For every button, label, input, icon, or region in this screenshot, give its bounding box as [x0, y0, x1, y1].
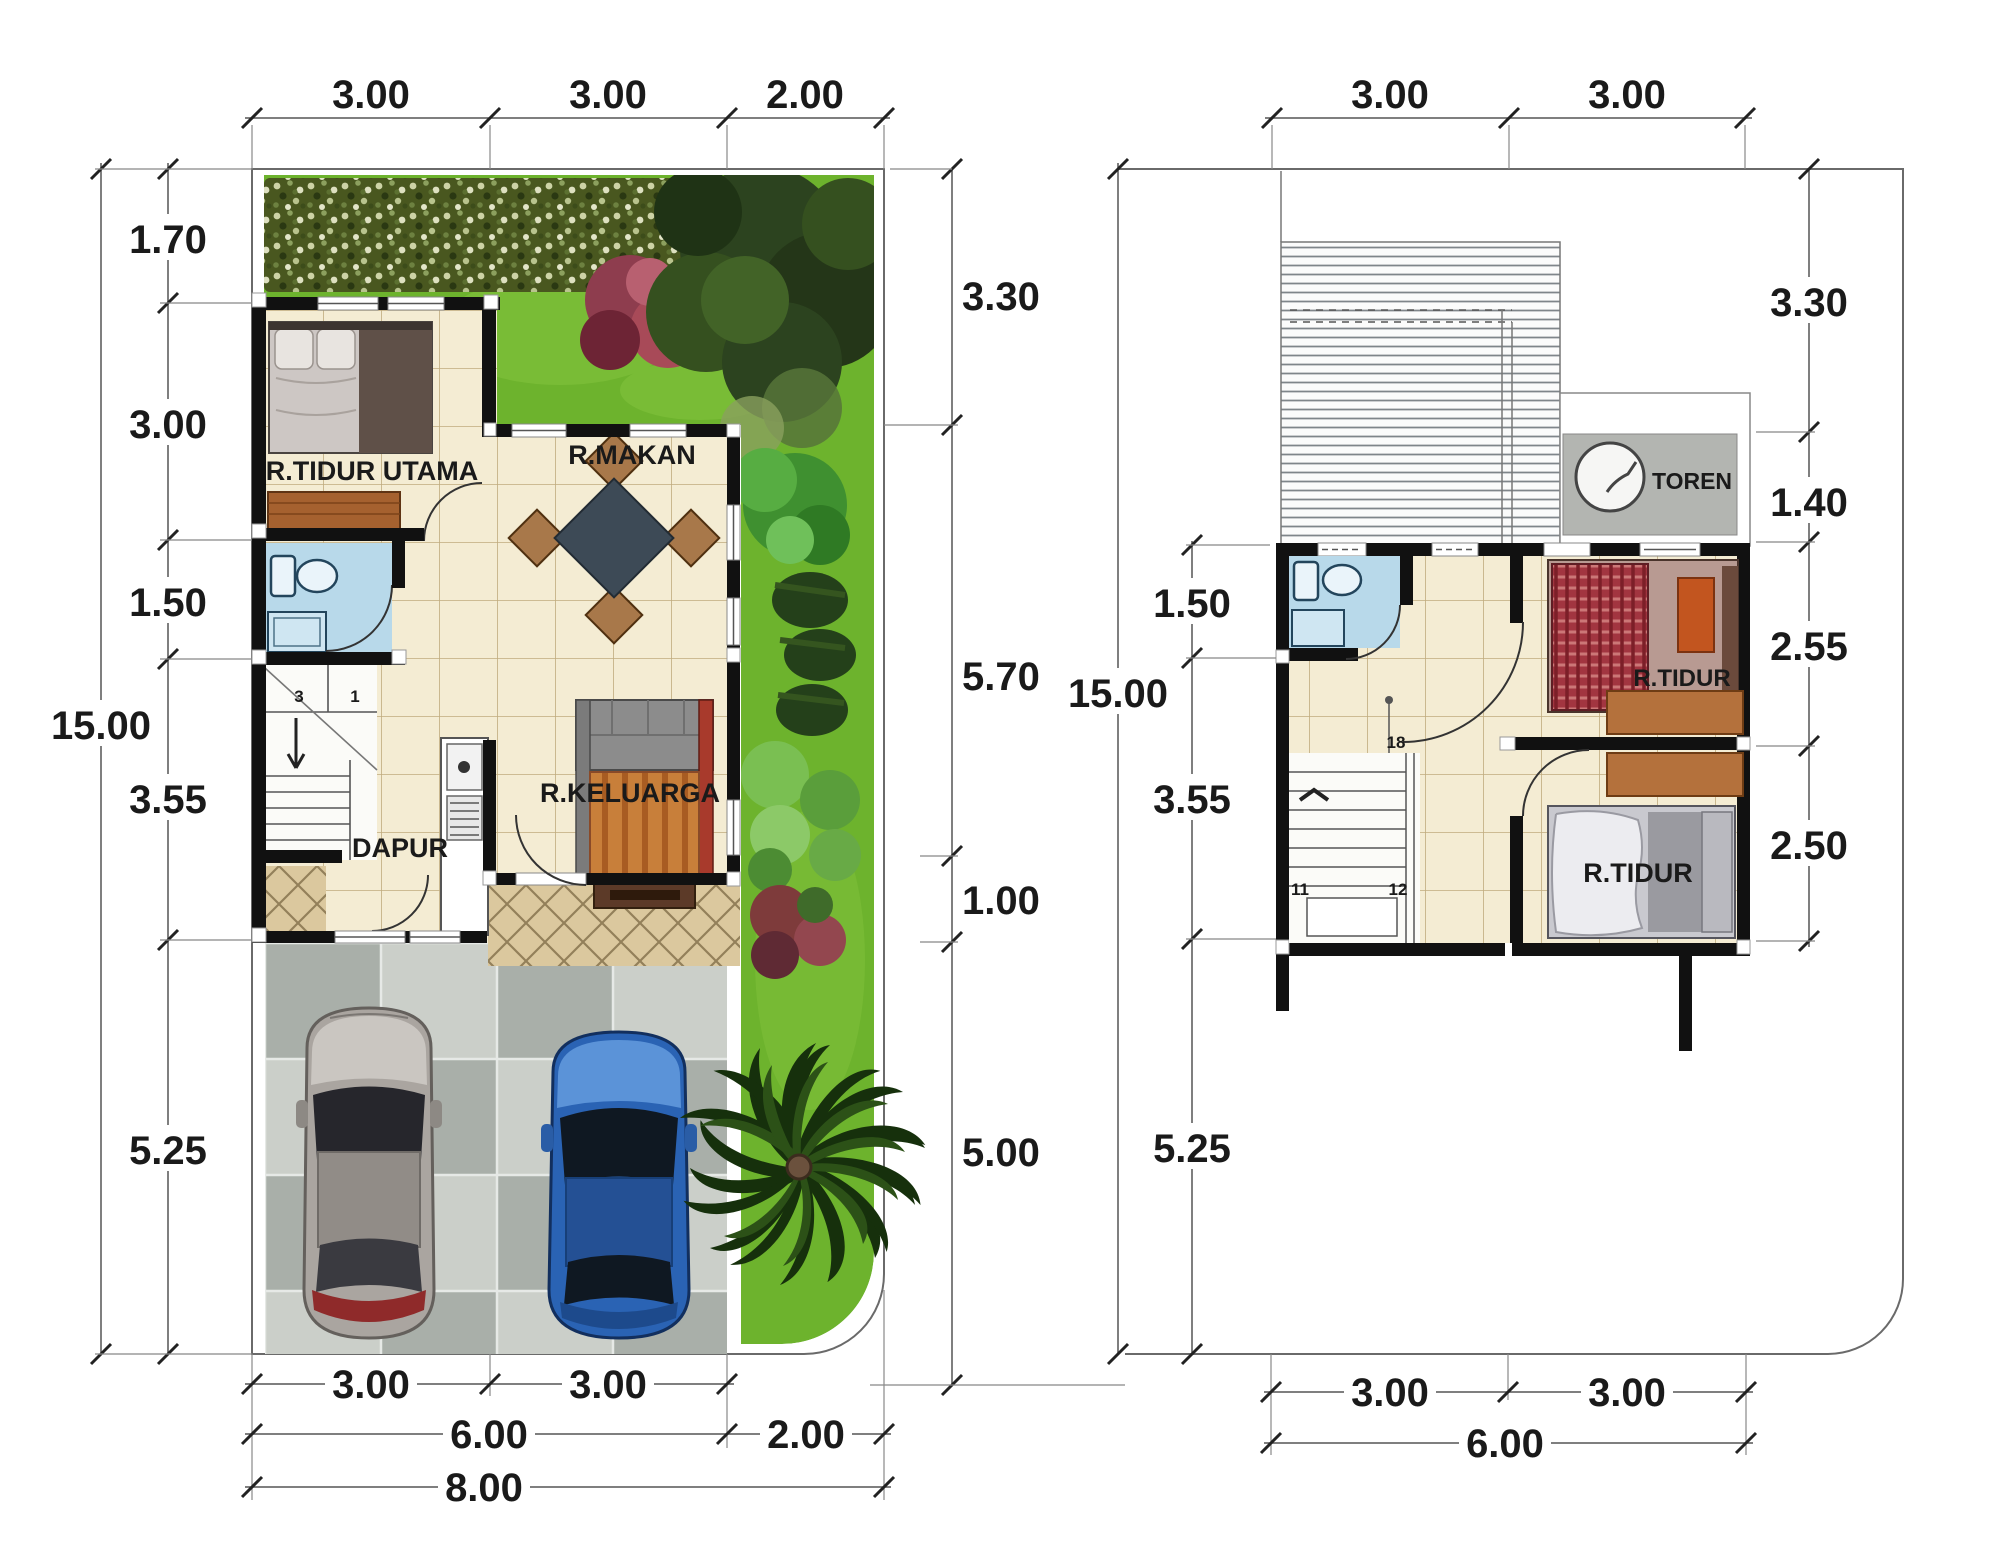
- svg-text:DAPUR: DAPUR: [352, 833, 448, 863]
- svg-text:3.30: 3.30: [1770, 281, 1848, 325]
- svg-text:6.00: 6.00: [1466, 1422, 1544, 1466]
- svg-text:2.50: 2.50: [1770, 824, 1848, 868]
- svg-text:15.00: 15.00: [51, 704, 151, 748]
- svg-text:R.MAKAN: R.MAKAN: [568, 440, 696, 470]
- svg-text:2.55: 2.55: [1770, 625, 1848, 669]
- svg-text:6.00: 6.00: [450, 1413, 528, 1457]
- svg-text:1: 1: [350, 687, 359, 706]
- svg-text:3.00: 3.00: [569, 73, 647, 117]
- svg-text:5.25: 5.25: [129, 1129, 207, 1173]
- svg-text:11: 11: [1291, 880, 1309, 899]
- svg-text:8.00: 8.00: [445, 1466, 523, 1510]
- svg-text:3.55: 3.55: [1153, 778, 1231, 822]
- svg-text:R.KELUARGA: R.KELUARGA: [540, 778, 720, 808]
- svg-text:3.00: 3.00: [1588, 1371, 1666, 1415]
- svg-text:18: 18: [1387, 733, 1406, 752]
- svg-text:15.00: 15.00: [1068, 672, 1168, 716]
- svg-text:3.00: 3.00: [569, 1363, 647, 1407]
- svg-text:3.00: 3.00: [332, 73, 410, 117]
- svg-text:1.00: 1.00: [962, 879, 1040, 923]
- svg-text:3.55: 3.55: [129, 778, 207, 822]
- svg-text:3.30: 3.30: [962, 275, 1040, 319]
- svg-text:R.TIDUR: R.TIDUR: [1583, 858, 1693, 888]
- svg-text:R.TIDUR UTAMA: R.TIDUR UTAMA: [266, 456, 478, 486]
- svg-text:1.40: 1.40: [1770, 481, 1848, 525]
- svg-text:3.00: 3.00: [1351, 73, 1429, 117]
- svg-text:3.00: 3.00: [1351, 1371, 1429, 1415]
- svg-text:3.00: 3.00: [1588, 73, 1666, 117]
- svg-text:R.TIDUR: R.TIDUR: [1633, 665, 1730, 692]
- svg-text:TOREN: TOREN: [1652, 468, 1732, 494]
- svg-text:1.50: 1.50: [1153, 582, 1231, 626]
- svg-text:5.25: 5.25: [1153, 1127, 1231, 1171]
- svg-text:12: 12: [1389, 880, 1408, 899]
- svg-text:1.70: 1.70: [129, 218, 207, 262]
- svg-text:2.00: 2.00: [767, 1413, 845, 1457]
- svg-text:3.00: 3.00: [332, 1363, 410, 1407]
- svg-text:1.50: 1.50: [129, 581, 207, 625]
- svg-text:3: 3: [294, 687, 303, 706]
- svg-text:5.70: 5.70: [962, 655, 1040, 699]
- svg-text:3.00: 3.00: [129, 403, 207, 447]
- svg-text:5.00: 5.00: [962, 1131, 1040, 1175]
- svg-text:2.00: 2.00: [766, 73, 844, 117]
